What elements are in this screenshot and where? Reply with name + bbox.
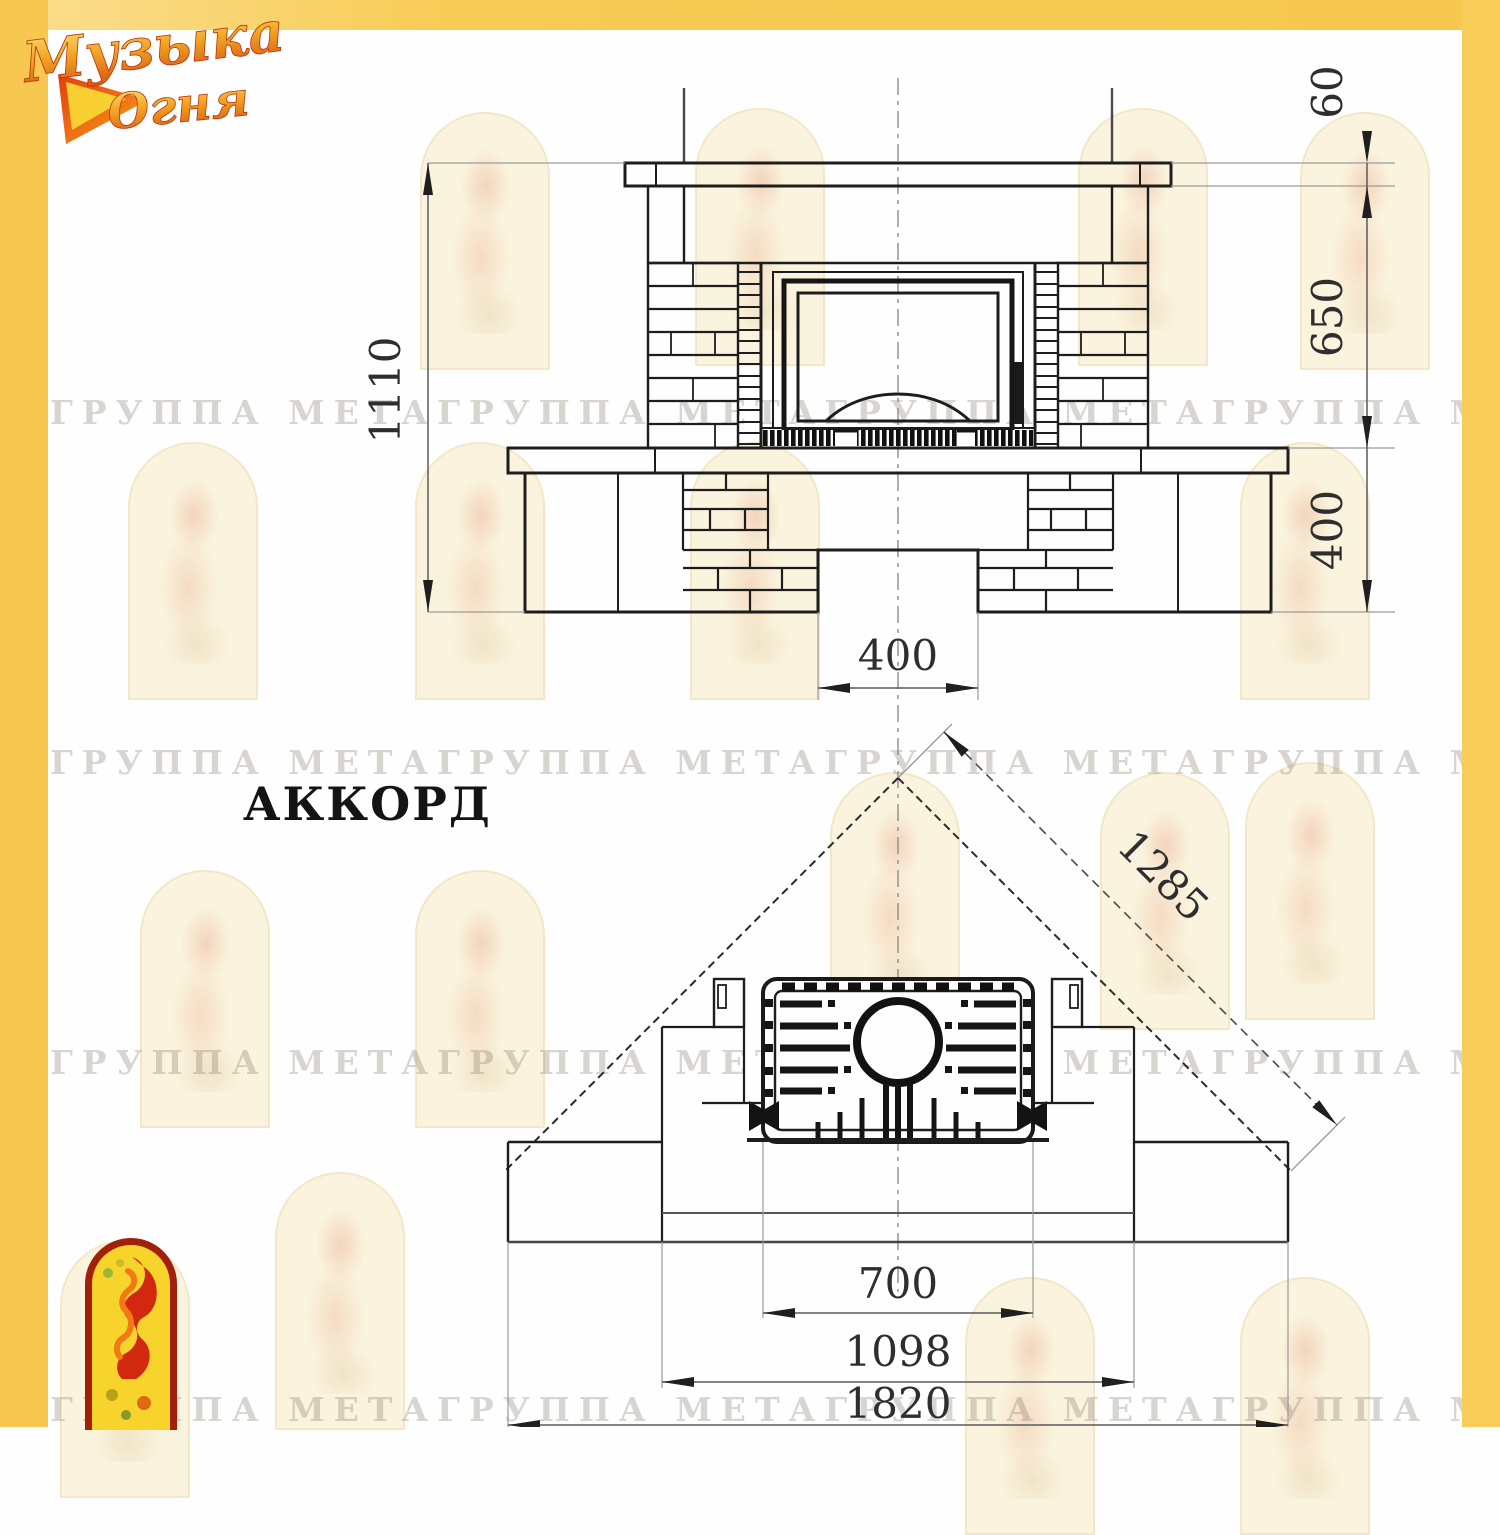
dim-base-height: 400	[1303, 490, 1352, 570]
model-title: АККОРД	[243, 777, 483, 831]
base-brick-right-upper	[1028, 473, 1113, 550]
dim-notch-width: 400	[858, 631, 938, 680]
dim-overall-width: 1820	[845, 1379, 952, 1427]
frame-strip-left	[0, 0, 48, 1427]
base-brick-left-upper	[683, 473, 768, 550]
dim-total-height: 1110	[361, 337, 410, 444]
grille-segment	[857, 430, 957, 446]
fireplace-technical-drawing: 1110 60 650 400 400	[0, 0, 1500, 1427]
dim-mantel-thickness: 60	[1303, 65, 1352, 118]
dim-wall-diagonal: 1285	[1108, 821, 1218, 931]
firebrick-strip-right	[1035, 272, 1058, 444]
dim-bench-width: 1098	[845, 1327, 952, 1376]
grille-segment	[975, 430, 1033, 446]
dim-firebox-width: 700	[858, 1259, 938, 1308]
grille-segment	[763, 430, 835, 446]
front-dimensions: 1110 60 650 400 400	[361, 65, 1395, 700]
flame-figure-art	[92, 1245, 170, 1425]
drawing-sheet: ГРУППА МЕТАГРУППА МЕТАГРУППА МЕТАГРУППА …	[0, 0, 1500, 1427]
firebrick-strip-left	[738, 272, 761, 444]
dim-opening-height: 650	[1303, 277, 1352, 357]
frame-strip-right	[1462, 0, 1500, 1427]
base-brick-right-lower	[978, 550, 1113, 612]
brand-logo: Музыка Огня	[8, 4, 308, 169]
base-brick-left-lower	[683, 550, 818, 612]
flame-figure-logo	[85, 1238, 177, 1430]
door-handle	[1014, 362, 1024, 424]
